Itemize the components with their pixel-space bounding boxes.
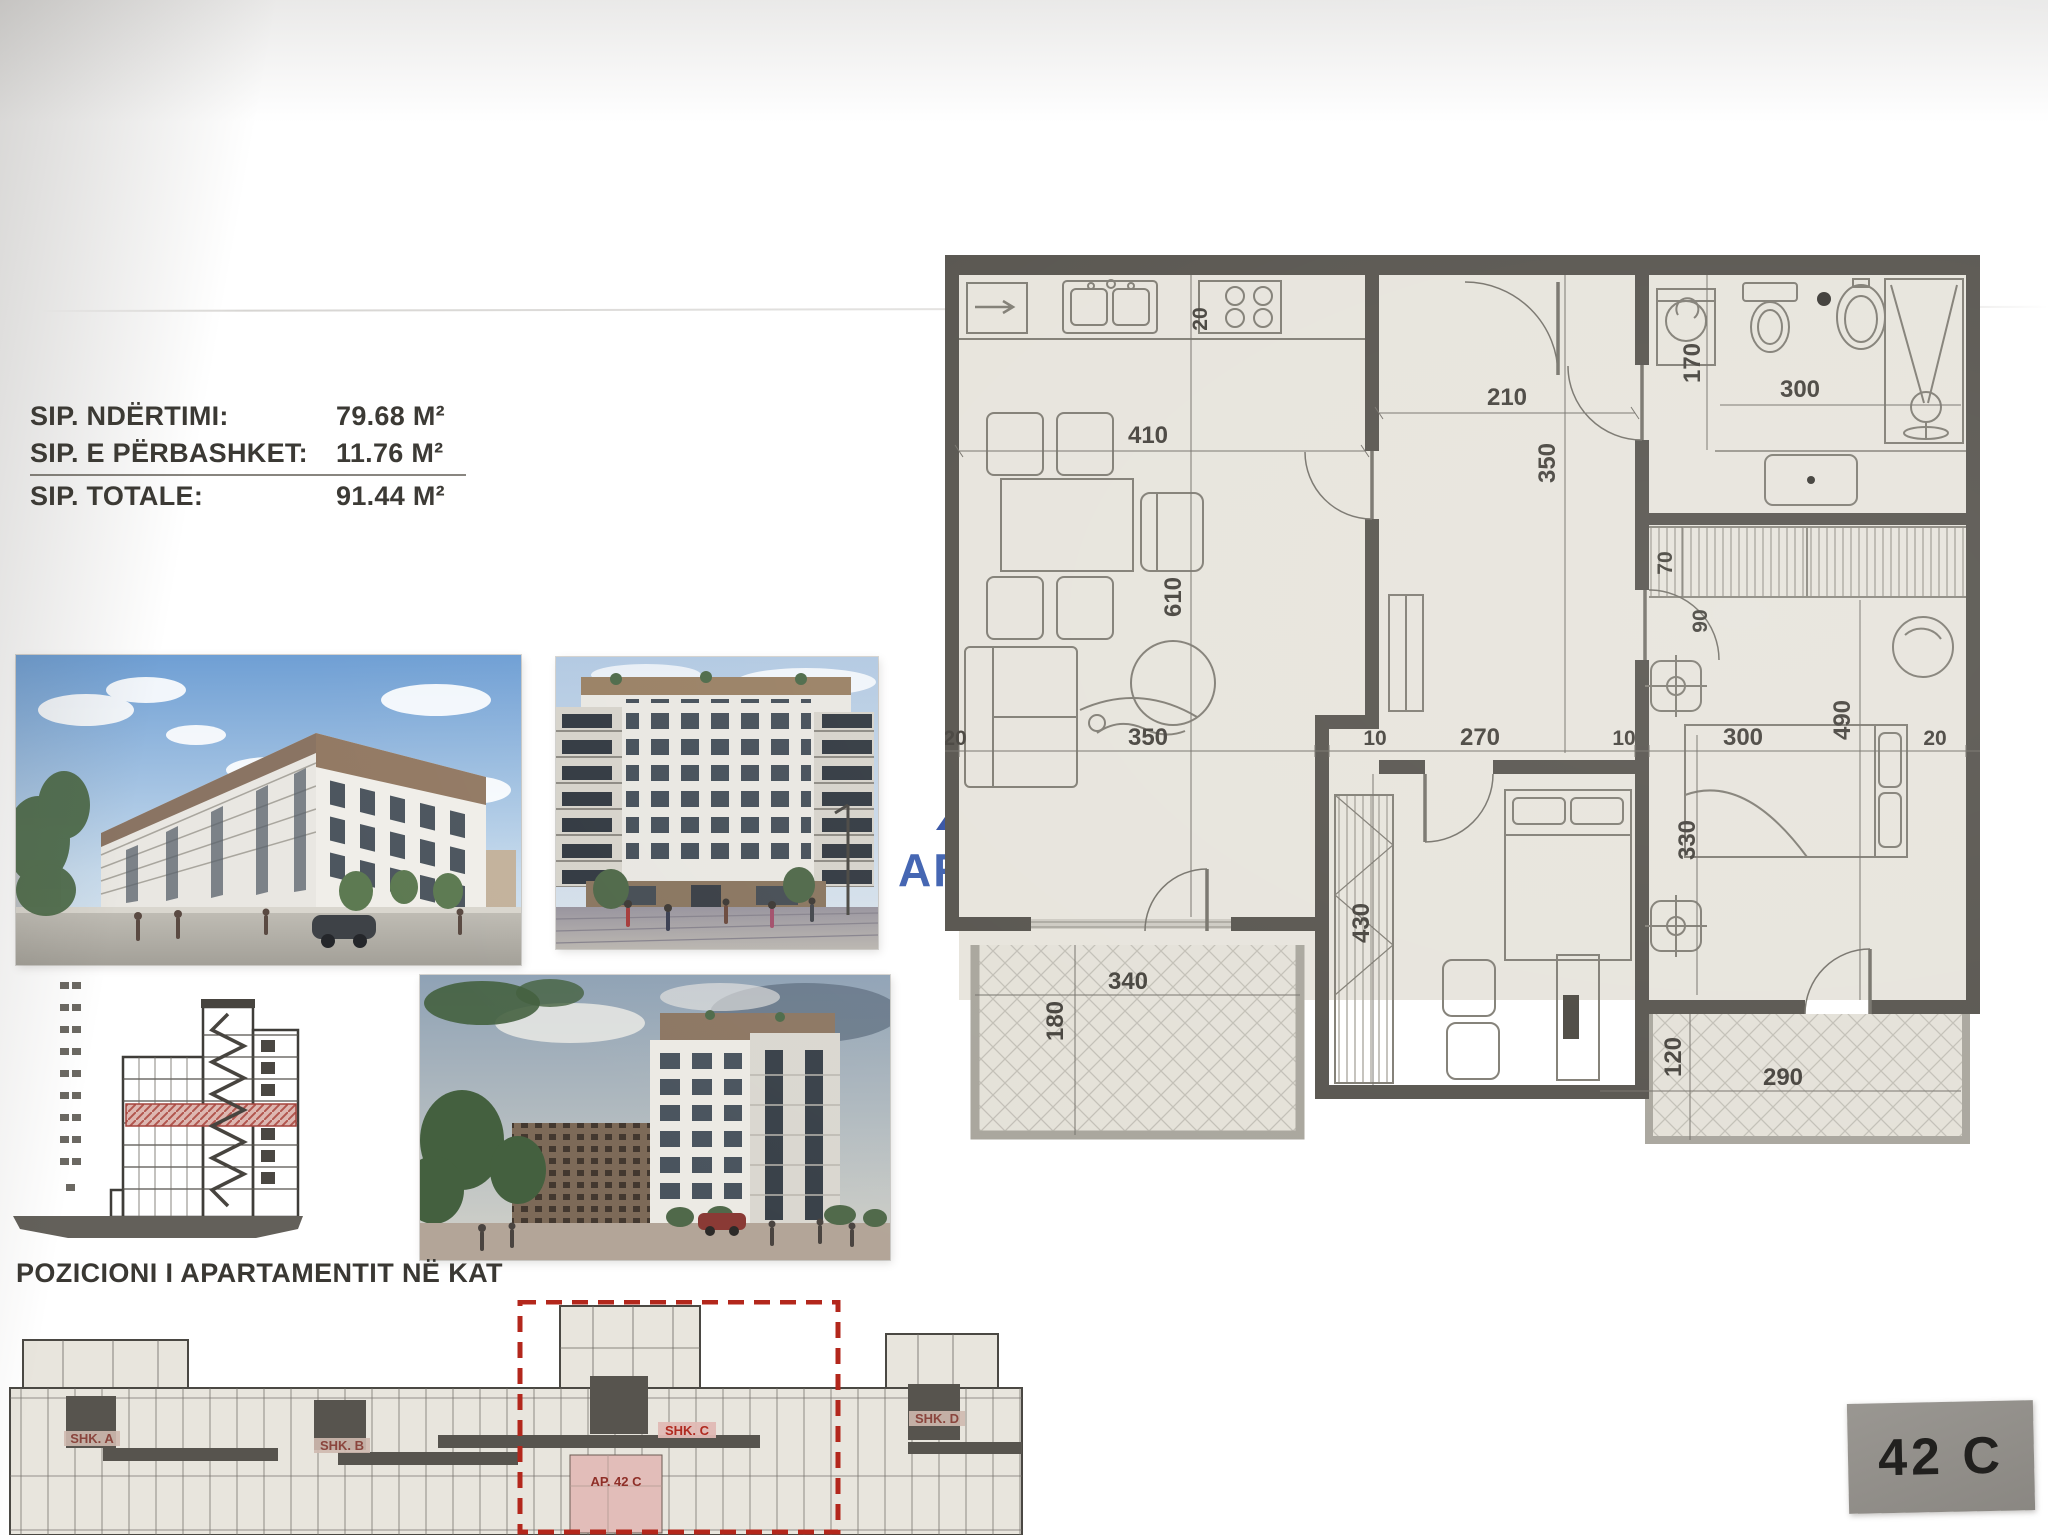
brochure-page: SIP. NDËRTIMI: 79.68 M² SIP. E PËRBASHKE… [0,0,2048,1535]
floor-plan-drawing: 410 20 210 300 170 350 610 70 90 490 20 … [945,255,1990,1145]
area-info-block: SIP. NDËRTIMI: 79.68 M² SIP. E PËRBASHKE… [30,398,466,515]
label-shk-a: SHK. A [70,1431,114,1446]
dim-90: 90 [1689,609,1712,632]
dim-210: 210 [1487,384,1527,411]
highlighted-apartment [570,1455,662,1533]
dim-410: 410 [1128,422,1168,449]
render-corner-view-image [420,975,890,1260]
area-value: 79.68 M² [336,401,445,432]
dim-70: 70 [1654,551,1677,574]
dim-20-stove: 20 [1189,307,1212,330]
cross-section-drawing [8,952,308,1247]
area-row-totale: SIP. TOTALE: 91.44 M² [30,474,466,515]
apartment-badge: 42 C [1847,1400,2035,1514]
render-street-view-image [16,655,521,965]
dim-290: 290 [1763,1064,1803,1091]
dim-20-left: 20 [945,727,967,750]
building-cross-section [8,952,308,1247]
label-shk-d: SHK. D [915,1411,959,1426]
dim-120: 120 [1660,1037,1687,1077]
dim-350-hall: 350 [1534,443,1561,483]
dim-430: 430 [1348,903,1375,943]
area-row-ndertimi: SIP. NDËRTIMI: 79.68 M² [30,398,466,435]
floor-plate-strip: SHK. A SHK. B SHK. C SHK. D AP. 42 C [8,1300,1038,1535]
render-plaza-view [556,657,878,949]
dim-330: 330 [1674,820,1701,860]
dim-350-band: 350 [1128,724,1168,751]
dim-490: 490 [1829,700,1856,740]
area-label: SIP. E PËRBASHKET: [30,438,336,469]
position-section-title: POZICIONI I APARTAMENTIT NË KAT [16,1258,503,1289]
highlighted-floor-band [126,1104,296,1126]
area-row-perbashket: SIP. E PËRBASHKET: 11.76 M² [30,435,466,472]
dim-300-bed: 300 [1723,724,1763,751]
dim-20-right: 20 [1923,727,1946,750]
label-shk-c: SHK. C [665,1423,710,1438]
dim-340: 340 [1108,968,1148,995]
dim-170: 170 [1679,343,1706,383]
dim-300-bath: 300 [1780,376,1820,403]
render-plaza-view-image [556,657,878,949]
render-corner-view [420,975,890,1260]
balcony-secondary [1649,1014,1966,1140]
ceiling-light-symbol [1645,655,1707,717]
apartment-floor-plan: 410 20 210 300 170 350 610 70 90 490 20 … [945,255,1990,1145]
area-value: 91.44 M² [336,481,445,512]
dim-610: 610 [1160,577,1187,617]
area-label: SIP. TOTALE: [30,481,336,512]
dim-180: 180 [1042,1001,1069,1041]
apartment-badge-label: 42 C [1877,1426,2004,1489]
ceiling-light-symbol [1645,895,1707,957]
label-shk-b: SHK. B [320,1438,364,1453]
dim-10-band: 10 [1363,727,1386,750]
dim-10-band2: 10 [1612,727,1635,750]
label-ap-42c: AP. 42 C [590,1474,642,1489]
area-value: 11.76 M² [336,438,443,469]
render-street-view [16,655,521,965]
core-shk-c [590,1376,648,1434]
dim-270: 270 [1460,724,1500,751]
floor-plate-drawing: SHK. A SHK. B SHK. C SHK. D AP. 42 C [8,1300,1038,1535]
area-label: SIP. NDËRTIMI: [30,401,336,432]
wardrobe-band [1649,527,1966,597]
